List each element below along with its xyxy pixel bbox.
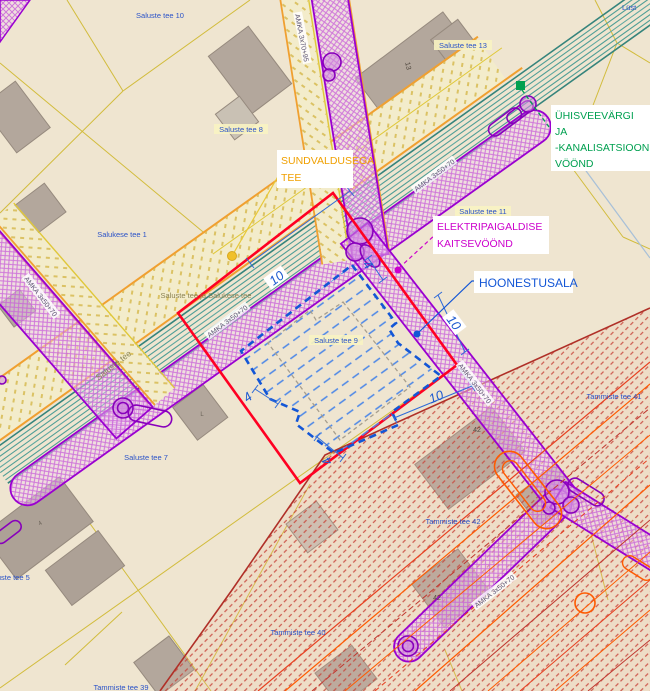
callout-text: -KANALISATSIOONI — [555, 142, 650, 154]
pole-symbol — [323, 69, 335, 81]
building-number: 42 — [473, 427, 481, 434]
pole-symbol — [323, 53, 341, 71]
building-number: 42 — [433, 595, 441, 602]
parcel-label: Salukese tee 1 — [97, 230, 147, 239]
callout-text: ELEKTRIPAIGALDISE — [437, 221, 542, 233]
parcel-label: Tammiste tee 40 — [270, 628, 325, 637]
pole-symbol — [403, 641, 414, 652]
callout-text: TEE — [281, 172, 301, 184]
plan-map-viewport: 10 10 10 4 4 4 SUNDVALDUSEGA TEE ÜHISVEE… — [0, 0, 650, 691]
elektripaigaldise-anchor-dot — [395, 267, 402, 274]
callout-elektripaigaldise: ELEKTRIPAIGALDISE KAITSEVÖÖND — [433, 216, 549, 254]
parcel-label: Saluste tee 8 — [219, 125, 263, 134]
pole-symbol — [118, 403, 129, 414]
callout-text: ÜHISVEEVÄRGI — [555, 110, 634, 122]
parcel-label: Saluste tee 9 — [314, 336, 358, 345]
parcel-label: Saluste tee 7 — [124, 453, 168, 462]
parcel-label: Saluste tee 13 — [439, 41, 487, 50]
parcel-label: Saluste tee ja Salukese tee — [161, 291, 252, 300]
parcel-label: Tammiste tee 42 — [425, 517, 480, 526]
parcel-label: Saluste tee 10 — [136, 11, 184, 20]
parcel-label: Tammiste tee 41 — [586, 392, 641, 401]
parcel-label: Saluste tee 5 — [0, 573, 30, 582]
pole-symbol — [0, 376, 6, 384]
callout-text: SUNDVALDUSEGA — [281, 155, 374, 167]
uhisveevargi-anchor-square — [516, 81, 525, 90]
callout-text: KAITSEVÖÖND — [437, 238, 513, 250]
callout-text: JA — [555, 126, 567, 138]
plan-map: 10 10 10 4 4 4 SUNDVALDUSEGA TEE ÜHISVEE… — [0, 0, 650, 691]
hoonestusala-anchor-dot — [414, 331, 421, 338]
callout-text: VÖÖND — [555, 158, 594, 170]
callout-hoonestusala: HOONESTUSALA — [474, 271, 578, 293]
parcel-label: Lüst — [622, 3, 637, 12]
parcel-label: Saluste tee 11 — [459, 207, 506, 216]
callout-text: HOONESTUSALA — [479, 276, 578, 290]
building-number: 13 — [403, 62, 411, 71]
sundvaldusega-anchor-dot — [228, 252, 237, 261]
parcel-label: Tammiste tee 39 — [93, 683, 148, 691]
transformer-symbol — [563, 497, 579, 513]
callout-uhisveevargi: ÜHISVEEVÄRGI JA -KANALISATSIOONI VÖÖND — [551, 105, 650, 171]
